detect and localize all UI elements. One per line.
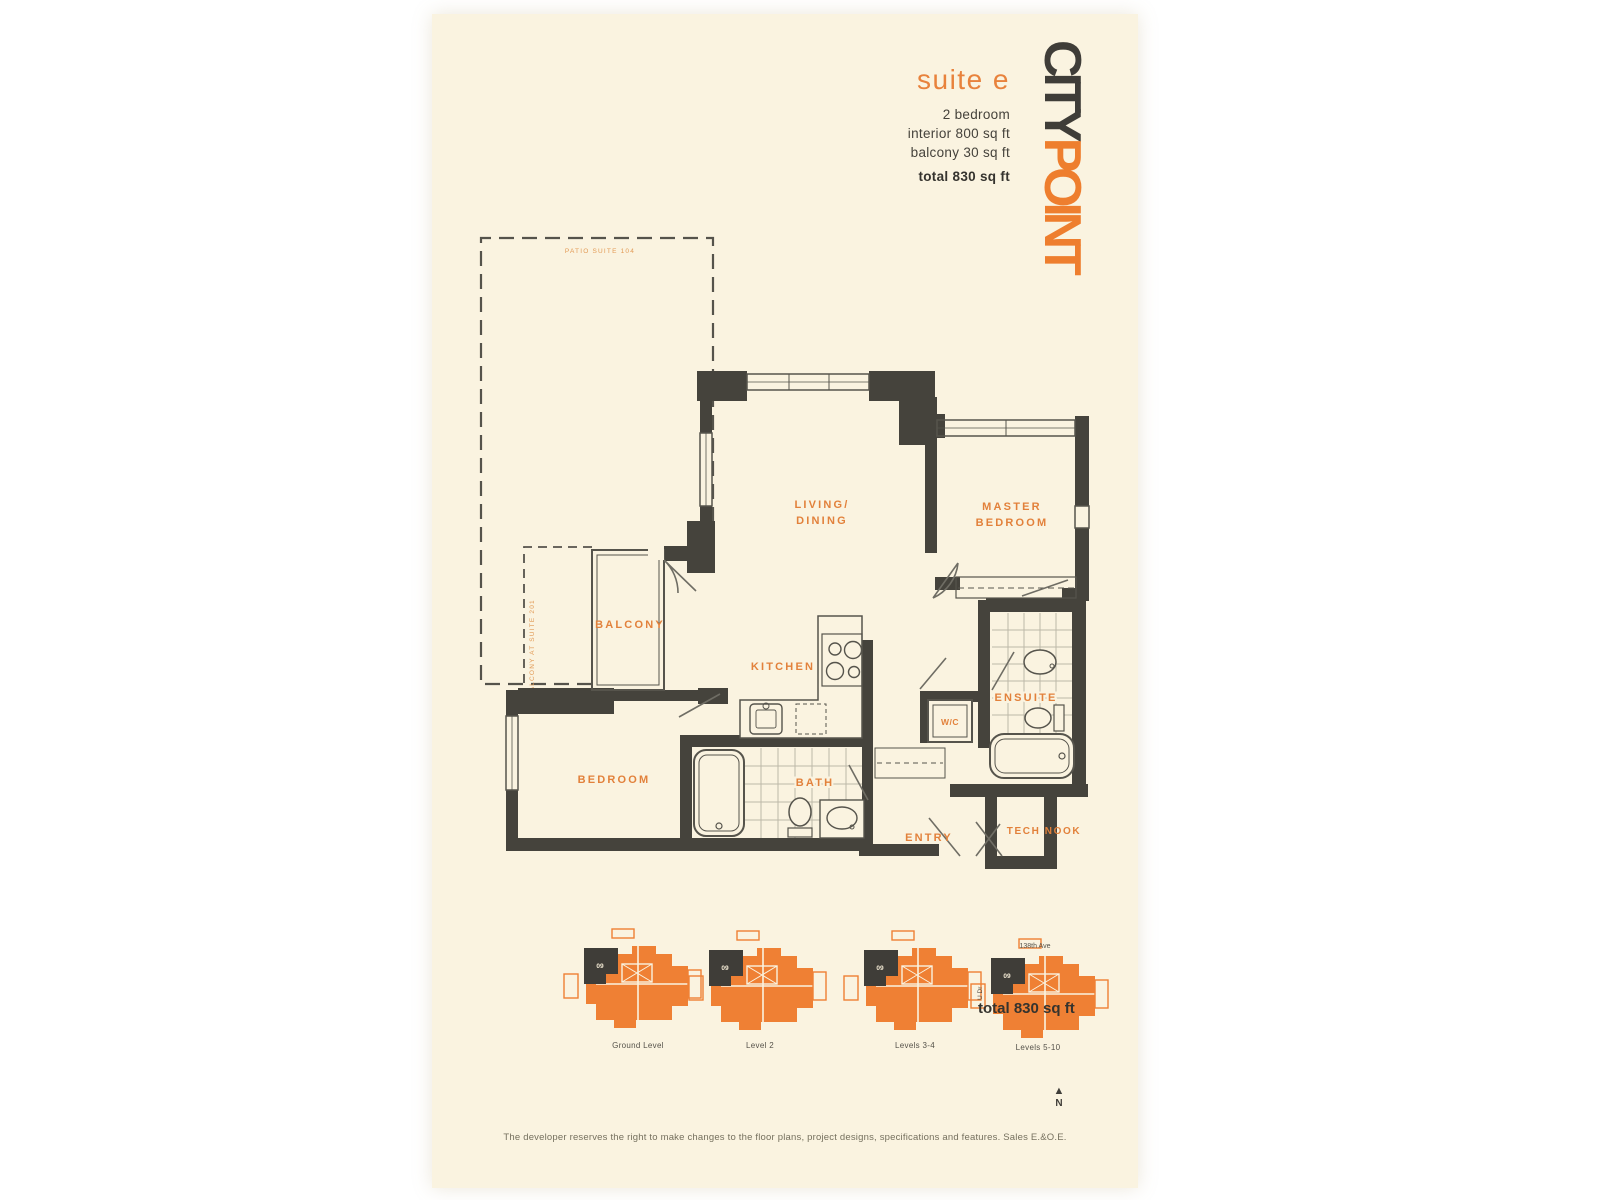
- room-label-ensuite: ENSUITE: [994, 692, 1057, 704]
- wc-door-swing: [920, 658, 946, 689]
- room-label-bath: BATH: [796, 777, 835, 789]
- unit-number: 09: [596, 963, 604, 970]
- suite-spec-block: suite e 2 bedroom interior 800 sq ft bal…: [820, 64, 1010, 184]
- patio-note: PATIO SUITE 104: [565, 248, 635, 255]
- unit-number: 09: [721, 965, 729, 972]
- keyplan-caption: Levels 3-4: [895, 1041, 935, 1050]
- spec-bedrooms: 2 bedroom: [820, 105, 1010, 124]
- spec-total: total 830 sq ft: [820, 169, 1010, 184]
- ensuite-sink: [1024, 650, 1056, 674]
- street-label-left: U Dr: [977, 986, 984, 1000]
- kitchen-fixtures: [740, 616, 862, 738]
- level-key-plans: 09 Ground Level 09 Level 2 09 Levels 3-4…: [540, 920, 1120, 1120]
- bath-fixtures: [694, 748, 864, 838]
- street-label-top: 138th Ave: [1019, 943, 1050, 950]
- suite-title: suite e: [820, 64, 1010, 96]
- keyplan-caption: Ground Level: [612, 1041, 664, 1050]
- unit-number: 09: [876, 965, 884, 972]
- ensuite-door-swing: [992, 652, 1014, 690]
- toilet: [788, 798, 812, 837]
- master-closet: [956, 577, 1076, 598]
- spec-balcony: balcony 30 sq ft: [820, 143, 1010, 162]
- north-arrow: ▲ N: [1054, 1085, 1065, 1109]
- total-area-overlay: total 830 sq ft: [978, 1000, 1075, 1017]
- north-label: N: [1055, 1098, 1062, 1109]
- spec-interior: interior 800 sq ft: [820, 124, 1010, 143]
- room-label-bedroom: BEDROOM: [578, 774, 651, 786]
- keyplan-caption: Level 2: [746, 1041, 774, 1050]
- disclaimer: The developer reserves the right to make…: [432, 1132, 1138, 1143]
- logo-city: CITY: [1033, 40, 1091, 138]
- entry-closet: [875, 748, 945, 778]
- keyplan-caption: Levels 5-10: [1016, 1043, 1061, 1052]
- room-label-master: MASTER: [982, 501, 1042, 513]
- room-label-technook: TECH NOOK: [1007, 826, 1081, 837]
- room-label-wc: W/C: [941, 717, 959, 727]
- balcony-note: BALCONY AT SUITE 201: [529, 599, 536, 697]
- room-label-balcony: BALCONY: [595, 619, 665, 631]
- ensuite-tub: [990, 734, 1074, 778]
- keyplan-level-2: 09 Level 2: [689, 931, 826, 1050]
- keyplan-levels-3-4: 09 Levels 3-4: [844, 931, 981, 1050]
- keyplan-levels-5-10: 09 Levels 5-10 138th Ave U Dr total 830 …: [971, 939, 1108, 1052]
- north-arrow-icon: ▲: [1054, 1085, 1065, 1097]
- room-label-dining: DINING: [796, 515, 848, 527]
- unit-number: 09: [1003, 973, 1011, 980]
- room-label-living: LIVING/: [794, 499, 849, 511]
- keyplan-ground-level: 09 Ground Level: [564, 929, 701, 1050]
- room-label-entry: ENTRY: [905, 832, 953, 844]
- room-label-master-bedroom: BEDROOM: [976, 517, 1049, 529]
- ensuite-toilet: [1025, 705, 1064, 731]
- bath-sink: [820, 800, 864, 838]
- room-label-kitchen: KITCHEN: [751, 661, 815, 673]
- walls: [506, 371, 1089, 869]
- floor-plan: PATIO SUITE 104 BALCONY AT SUITE 201: [470, 220, 1110, 880]
